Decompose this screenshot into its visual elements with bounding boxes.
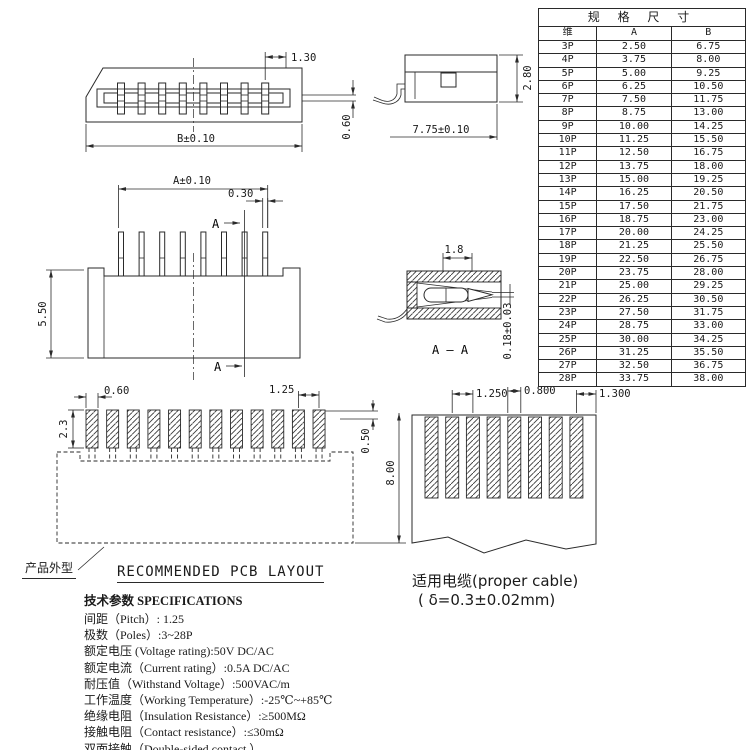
dim-pcb-depth: 8.00 bbox=[385, 460, 397, 485]
connector-side-view: 2.80 7.75±0.10 bbox=[373, 55, 534, 140]
dim-top-width: B±0.10 bbox=[177, 133, 215, 145]
table-row: 28P 33.75 38.00 bbox=[539, 373, 746, 386]
dim-a-cell: 26.25 bbox=[597, 293, 671, 306]
dim-pcb-pad-width: 0.60 bbox=[104, 385, 129, 397]
dim-b-cell: 6.75 bbox=[671, 41, 745, 54]
dim-cable-conductor-width: 0.800 bbox=[524, 385, 556, 397]
spec-item: 间距（Pitch）: 1.25 bbox=[84, 611, 404, 627]
pin-count-cell: 7P bbox=[539, 94, 597, 107]
pin-count-cell: 21P bbox=[539, 280, 597, 293]
dim-a-cell: 7.50 bbox=[597, 94, 671, 107]
pin-count-cell: 25P bbox=[539, 333, 597, 346]
table-row: 19P 22.50 26.75 bbox=[539, 253, 746, 266]
spec-item: 耐压值（Withstand Voltage）:500VAC/m bbox=[84, 676, 404, 692]
dim-a-cell: 17.50 bbox=[597, 200, 671, 213]
table-row: 24P 28.75 33.00 bbox=[539, 320, 746, 333]
table-row: 5P 5.00 9.25 bbox=[539, 67, 746, 80]
dim-pcb-pad-height: 2.3 bbox=[58, 420, 70, 439]
spec-item: 接触电阻（Contact resistance）:≤30mΩ bbox=[84, 724, 404, 740]
dim-pcb-offset: 0.50 bbox=[360, 428, 372, 453]
dim-b-cell: 14.25 bbox=[671, 120, 745, 133]
dim-b-cell: 34.25 bbox=[671, 333, 745, 346]
cable-view: 1.250 0.800 1.300 bbox=[412, 385, 631, 553]
spec-size-table: 规 格 尺 寸 维 A B 3P 2.50 6.75 4P 3.75 8.00 … bbox=[538, 8, 746, 387]
pin-count-cell: 6P bbox=[539, 80, 597, 93]
dim-b-cell: 9.25 bbox=[671, 67, 745, 80]
table-title: 规 格 尺 寸 bbox=[539, 9, 746, 27]
pin-count-cell: 4P bbox=[539, 54, 597, 67]
dim-a-cell: 23.75 bbox=[597, 267, 671, 280]
dim-b-cell: 23.00 bbox=[671, 213, 745, 226]
table-row: 22P 26.25 30.50 bbox=[539, 293, 746, 306]
section-label-bottom: A bbox=[214, 360, 222, 374]
spec-item: 双面接触（Double-sided contact ） bbox=[84, 741, 404, 750]
dim-b-cell: 29.25 bbox=[671, 280, 745, 293]
table-row: 25P 30.00 34.25 bbox=[539, 333, 746, 346]
dim-a-cell: 16.25 bbox=[597, 187, 671, 200]
pin-count-cell: 9P bbox=[539, 120, 597, 133]
dim-a-cell: 15.00 bbox=[597, 173, 671, 186]
table-row: 14P 16.25 20.50 bbox=[539, 187, 746, 200]
dim-section-contact-width: 1.8 bbox=[445, 244, 464, 256]
dim-cable-margin: 1.300 bbox=[599, 388, 631, 400]
dim-front-height: 5.50 bbox=[37, 301, 49, 326]
pin-count-cell: 16P bbox=[539, 213, 597, 226]
cable-caption: 适用电缆(proper cable) ( δ=0.3±0.02mm) bbox=[412, 572, 578, 610]
dim-b-cell: 38.00 bbox=[671, 373, 745, 386]
table-row: 27P 32.50 36.75 bbox=[539, 360, 746, 373]
col-header-b: B bbox=[671, 27, 745, 41]
table-row: 20P 23.75 28.00 bbox=[539, 267, 746, 280]
table-row: 17P 20.00 24.25 bbox=[539, 227, 746, 240]
pin-count-cell: 11P bbox=[539, 147, 597, 160]
pin-count-cell: 10P bbox=[539, 134, 597, 147]
pin-count-cell: 17P bbox=[539, 227, 597, 240]
table-row: 7P 7.50 11.75 bbox=[539, 94, 746, 107]
table-row: 10P 11.25 15.50 bbox=[539, 134, 746, 147]
dim-top-slot: 0.60 bbox=[341, 114, 353, 139]
table-header-row: 维 A B bbox=[539, 27, 746, 41]
dim-a-cell: 32.50 bbox=[597, 360, 671, 373]
dim-a-cell: 27.50 bbox=[597, 306, 671, 319]
dim-a-cell: 33.75 bbox=[597, 373, 671, 386]
section-view-a-a: 1.8 0.18±0.03 A — A bbox=[377, 244, 514, 359]
dim-b-cell: 31.75 bbox=[671, 306, 745, 319]
dim-b-cell: 24.25 bbox=[671, 227, 745, 240]
dim-front-span: A±0.10 bbox=[173, 175, 211, 187]
pin-count-cell: 13P bbox=[539, 173, 597, 186]
pcb-layout-view: 0.60 1.25 2.3 0.50 8.00 bbox=[57, 384, 406, 570]
dim-b-cell: 26.75 bbox=[671, 253, 745, 266]
specifications-block: 技术参数 SPECIFICATIONS 间距（Pitch）: 1.25 极数（P… bbox=[84, 590, 404, 750]
connector-front-view: A±0.10 0.30 5.50 A A bbox=[37, 175, 300, 380]
dim-a-cell: 10.00 bbox=[597, 120, 671, 133]
table-row: 26P 31.25 35.50 bbox=[539, 346, 746, 359]
dim-side-depth: 7.75±0.10 bbox=[413, 124, 470, 136]
spec-item: 极数（Poles）:3~28P bbox=[84, 627, 404, 643]
datasheet-page: 1.30 B±0.10 0.60 2.80 7.75±0.10 bbox=[0, 0, 750, 750]
pin-count-cell: 12P bbox=[539, 160, 597, 173]
dim-b-cell: 11.75 bbox=[671, 94, 745, 107]
dim-a-cell: 2.50 bbox=[597, 41, 671, 54]
dim-a-cell: 20.00 bbox=[597, 227, 671, 240]
pin-count-cell: 18P bbox=[539, 240, 597, 253]
table-row: 3P 2.50 6.75 bbox=[539, 41, 746, 54]
dim-b-cell: 15.50 bbox=[671, 134, 745, 147]
dim-a-cell: 22.50 bbox=[597, 253, 671, 266]
dim-b-cell: 20.50 bbox=[671, 187, 745, 200]
cable-caption-line2: ( δ=0.3±0.02mm) bbox=[412, 591, 578, 610]
dim-a-cell: 6.25 bbox=[597, 80, 671, 93]
dim-b-cell: 19.25 bbox=[671, 173, 745, 186]
table-row: 9P 10.00 14.25 bbox=[539, 120, 746, 133]
section-view-label: A — A bbox=[432, 343, 469, 357]
table-row: 11P 12.50 16.75 bbox=[539, 147, 746, 160]
pin-count-cell: 24P bbox=[539, 320, 597, 333]
dim-a-cell: 30.00 bbox=[597, 333, 671, 346]
dim-a-cell: 11.25 bbox=[597, 134, 671, 147]
dim-top-pitch: 1.30 bbox=[291, 52, 316, 64]
dim-section-contact-gap: 0.18±0.03 bbox=[502, 303, 514, 360]
dim-a-cell: 13.75 bbox=[597, 160, 671, 173]
product-outline-label: 产品外型 bbox=[22, 559, 76, 579]
spec-item: 额定电压 (Voltage rating):50V DC/AC bbox=[84, 643, 404, 659]
dim-b-cell: 35.50 bbox=[671, 346, 745, 359]
pin-count-cell: 28P bbox=[539, 373, 597, 386]
table-row: 21P 25.00 29.25 bbox=[539, 280, 746, 293]
col-header-a: A bbox=[597, 27, 671, 41]
dim-b-cell: 13.00 bbox=[671, 107, 745, 120]
table-row: 13P 15.00 19.25 bbox=[539, 173, 746, 186]
dim-a-cell: 31.25 bbox=[597, 346, 671, 359]
col-header-pin: 维 bbox=[539, 27, 597, 41]
cable-caption-line1: 适用电缆(proper cable) bbox=[412, 572, 578, 591]
table-title-row: 规 格 尺 寸 bbox=[539, 9, 746, 27]
table-row: 6P 6.25 10.50 bbox=[539, 80, 746, 93]
pin-count-cell: 14P bbox=[539, 187, 597, 200]
dim-cable-pitch: 1.250 bbox=[476, 388, 508, 400]
dim-pcb-pitch: 1.25 bbox=[269, 384, 294, 396]
spec-item: 工作温度（Working Temperature）:-25℃~+85℃ bbox=[84, 692, 404, 708]
pin-count-cell: 15P bbox=[539, 200, 597, 213]
pin-count-cell: 3P bbox=[539, 41, 597, 54]
table-row: 18P 21.25 25.50 bbox=[539, 240, 746, 253]
specifications-list: 间距（Pitch）: 1.25 极数（Poles）:3~28P 额定电压 (Vo… bbox=[84, 611, 404, 750]
dim-a-cell: 8.75 bbox=[597, 107, 671, 120]
specifications-heading: 技术参数 SPECIFICATIONS bbox=[84, 590, 404, 609]
pin-count-cell: 20P bbox=[539, 267, 597, 280]
pin-count-cell: 22P bbox=[539, 293, 597, 306]
table-row: 15P 17.50 21.75 bbox=[539, 200, 746, 213]
dim-a-cell: 5.00 bbox=[597, 67, 671, 80]
table-row: 12P 13.75 18.00 bbox=[539, 160, 746, 173]
dim-a-cell: 12.50 bbox=[597, 147, 671, 160]
spec-item: 额定电流（Current rating）:0.5A DC/AC bbox=[84, 660, 404, 676]
pin-count-cell: 27P bbox=[539, 360, 597, 373]
spec-item: 绝缘电阻（Insulation Resistance）:≥500MΩ bbox=[84, 708, 404, 724]
table-row: 4P 3.75 8.00 bbox=[539, 54, 746, 67]
connector-top-view: 1.30 B±0.10 0.60 bbox=[86, 52, 356, 152]
dim-b-cell: 8.00 bbox=[671, 54, 745, 67]
dim-b-cell: 36.75 bbox=[671, 360, 745, 373]
dim-b-cell: 10.50 bbox=[671, 80, 745, 93]
table-row: 16P 18.75 23.00 bbox=[539, 213, 746, 226]
pin-count-cell: 5P bbox=[539, 67, 597, 80]
table-row: 23P 27.50 31.75 bbox=[539, 306, 746, 319]
pin-count-cell: 8P bbox=[539, 107, 597, 120]
dim-b-cell: 33.00 bbox=[671, 320, 745, 333]
dim-side-height: 2.80 bbox=[522, 65, 534, 90]
dim-a-cell: 3.75 bbox=[597, 54, 671, 67]
pin-count-cell: 19P bbox=[539, 253, 597, 266]
pin-count-cell: 26P bbox=[539, 346, 597, 359]
dim-a-cell: 28.75 bbox=[597, 320, 671, 333]
pin-count-cell: 23P bbox=[539, 306, 597, 319]
dim-b-cell: 21.75 bbox=[671, 200, 745, 213]
section-label-top: A bbox=[212, 217, 220, 231]
dim-b-cell: 25.50 bbox=[671, 240, 745, 253]
dim-front-pin-width: 0.30 bbox=[228, 188, 253, 200]
dim-b-cell: 30.50 bbox=[671, 293, 745, 306]
dim-b-cell: 18.00 bbox=[671, 160, 745, 173]
pcb-layout-title: RECOMMENDED PCB LAYOUT bbox=[117, 564, 324, 583]
dim-b-cell: 16.75 bbox=[671, 147, 745, 160]
dim-b-cell: 28.00 bbox=[671, 267, 745, 280]
table-row: 8P 8.75 13.00 bbox=[539, 107, 746, 120]
dim-a-cell: 18.75 bbox=[597, 213, 671, 226]
dim-a-cell: 21.25 bbox=[597, 240, 671, 253]
dim-a-cell: 25.00 bbox=[597, 280, 671, 293]
